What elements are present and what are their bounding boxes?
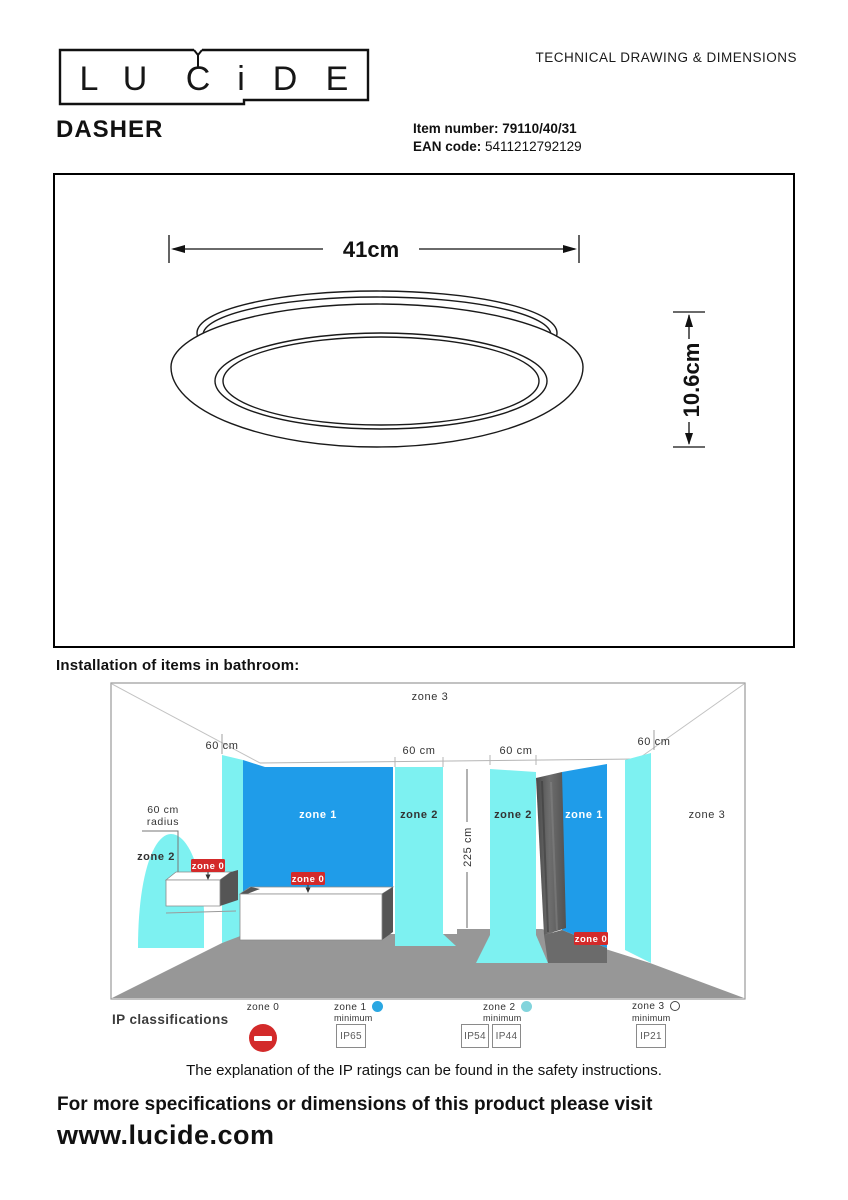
legend-zone2-label: zone 2: [483, 1002, 515, 1013]
legend-zone2-minimum: minimum: [483, 1013, 522, 1023]
document-title: TECHNICAL DRAWING & DIMENSIONS: [535, 50, 797, 65]
product-name: DASHER: [56, 116, 163, 144]
ean-label: EAN code:: [413, 139, 481, 154]
zone2-dot-icon: [521, 1001, 532, 1012]
dim-60-shower-label: 60 cm: [500, 745, 533, 757]
legend-zone3-row: zone 3: [632, 1001, 680, 1012]
legend-zone1-minimum: minimum: [334, 1013, 373, 1023]
no-entry-icon: [249, 1024, 277, 1052]
lamp-diffuser-inner: [223, 337, 539, 425]
logo-letter-l: L: [80, 60, 99, 98]
bathtub-side: [382, 887, 393, 940]
logo-letter-u: U: [123, 60, 148, 98]
ip54-box: IP54: [461, 1024, 489, 1048]
ceiling-lamp: [171, 291, 583, 447]
ean-row: EAN code: 5411212792129: [413, 138, 582, 156]
width-arrow-left: [171, 245, 185, 253]
legend-zone3-minimum: minimum: [632, 1013, 671, 1023]
item-number-row: Item number: 79110/40/31: [413, 120, 582, 138]
dim-60-bath-label: 60 cm: [403, 745, 436, 757]
height-arrow-up: [685, 314, 693, 327]
bathroom-section-heading: Installation of items in bathroom:: [56, 657, 299, 674]
logo-border: [60, 50, 368, 104]
height-arrow-down: [685, 433, 693, 445]
product-codes: Item number: 79110/40/31 EAN code: 54112…: [413, 120, 582, 156]
zone0-bath-badge-label: zone 0: [292, 874, 325, 885]
zone1-dot-icon: [372, 1001, 383, 1012]
logo-letter-c: C: [186, 60, 211, 98]
ip65-box: IP65: [336, 1024, 366, 1048]
washbasin-top: [166, 872, 231, 880]
zone2-bath-label: zone 2: [400, 809, 438, 821]
bathtub-top: [240, 887, 393, 894]
width-arrow-right: [563, 245, 577, 253]
legend-zone0-label: zone 0: [240, 1002, 286, 1013]
zone0-basin-badge-label: zone 0: [192, 861, 225, 872]
legend-zone3-label: zone 3: [632, 1001, 664, 1012]
dim-60-left-label: 60 cm: [206, 740, 239, 752]
legend-zone1-label: zone 1: [334, 1002, 366, 1013]
radius-label-line1: 60 cm: [147, 804, 179, 816]
technical-drawing-box: 41cm 10.6cm: [53, 173, 795, 648]
legend-title: IP classifications: [112, 1012, 229, 1027]
height-dimension-label: 10.6cm: [679, 343, 704, 418]
item-number-label: Item number:: [413, 121, 499, 136]
zone3-top-label: zone 3: [412, 691, 449, 703]
zone2-bathtub-strip: [395, 767, 443, 934]
zone1-shower-label: zone 1: [565, 809, 603, 821]
width-dimension-label: 41cm: [343, 237, 399, 262]
legend-zone1-row: zone 1: [334, 1001, 383, 1013]
zone2-basin-label: zone 2: [137, 851, 175, 863]
zone3-right-label: zone 3: [689, 809, 726, 821]
lucide-logo: L U C i D E: [57, 46, 372, 110]
technical-drawing-page: L U C i D E TECHNICAL DRAWING & DIMENSIO…: [0, 0, 848, 1200]
zone2-shower-strip: [490, 769, 536, 935]
footer-visit-text: For more specifications or dimensions of…: [57, 1094, 652, 1116]
website-link[interactable]: www.lucide.com: [57, 1120, 275, 1151]
logo-letters: L U C i D E: [80, 60, 349, 98]
zone2-right-strip: [625, 753, 651, 963]
zone2-shower-label: zone 2: [494, 809, 532, 821]
zone1-bath-label: zone 1: [299, 809, 337, 821]
ean-value: 5411212792129: [485, 139, 582, 154]
lamp-drawing: 41cm 10.6cm: [55, 175, 793, 646]
washbasin-front: [166, 880, 220, 906]
ip44-box: IP44: [492, 1024, 521, 1048]
ip-ratings-note: The explanation of the IP ratings can be…: [0, 1062, 848, 1079]
legend-zone2-row: zone 2: [483, 1001, 532, 1013]
ip21-box: IP21: [636, 1024, 666, 1048]
zone3-ring-icon: [670, 1001, 680, 1011]
item-number-value: 79110/40/31: [502, 121, 576, 136]
radius-label-line2: radius: [147, 816, 179, 828]
zone0-shower-badge-label: zone 0: [575, 934, 608, 945]
bathtub-front: [240, 894, 382, 940]
logo-letter-e: E: [326, 60, 349, 98]
no-entry-bar: [254, 1036, 272, 1041]
zone1-shower-wall: [562, 764, 607, 948]
dim-60-right-label: 60 cm: [638, 736, 671, 748]
dim-225-label: 225 cm: [462, 827, 474, 867]
bathroom-zones-diagram: 225 cm zone 3 60 cm 60 cm 60 cm 60 cm 60…: [110, 682, 746, 1000]
logo-letter-d: D: [273, 60, 298, 98]
logo-letter-i: i: [237, 60, 245, 98]
